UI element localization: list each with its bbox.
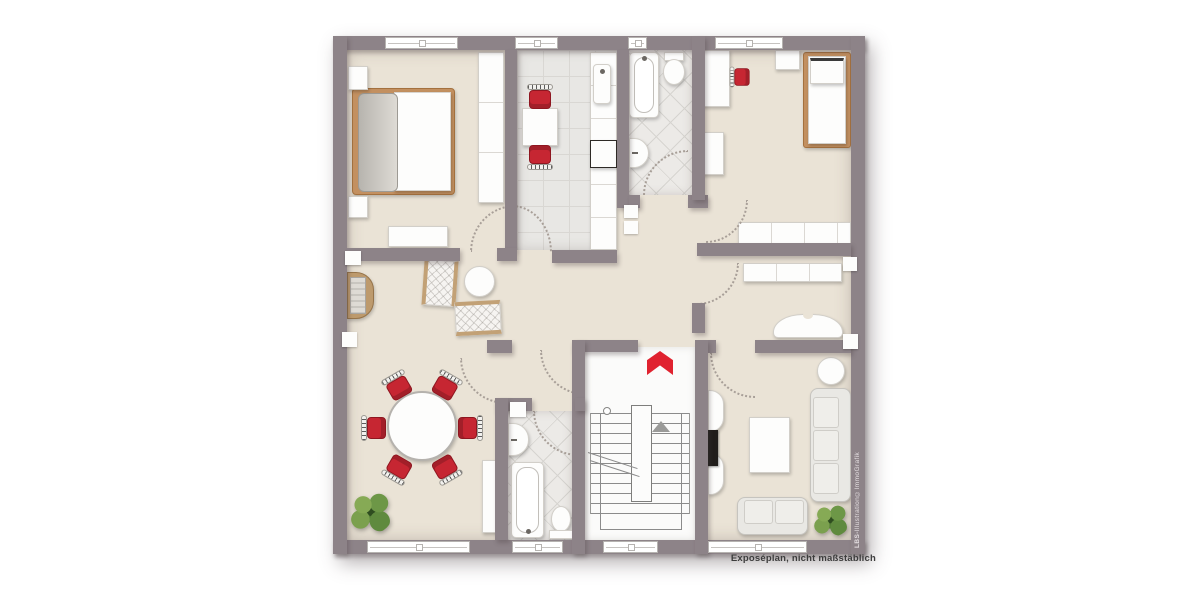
wall-niche — [843, 257, 857, 271]
hall-sideboard — [743, 263, 842, 282]
sofa-cushion — [813, 397, 839, 428]
sofa-cushion — [813, 463, 839, 494]
toilet-bowl — [551, 506, 571, 532]
chair-seat — [458, 417, 477, 439]
wall-niche — [345, 251, 361, 265]
watermark-text: Illustration©ImmoGrafik — [854, 452, 861, 531]
coffee-table — [749, 417, 790, 473]
dining-chair — [361, 414, 387, 442]
wall — [505, 50, 517, 250]
wall — [333, 36, 347, 554]
bathtub — [629, 52, 659, 118]
wall — [572, 340, 585, 554]
stair-newel — [603, 407, 611, 415]
sofa-3seat — [810, 388, 851, 502]
single-bed-pillow — [810, 58, 844, 84]
wall-niche — [624, 221, 638, 234]
dresser — [388, 226, 448, 247]
window — [603, 541, 658, 553]
wall — [692, 36, 705, 200]
wall — [708, 340, 716, 353]
window — [512, 541, 563, 553]
chair-seat — [367, 417, 386, 439]
wall — [617, 50, 629, 208]
chair-seat — [529, 90, 551, 109]
wall-niche — [342, 332, 357, 347]
upholstered-chair — [421, 259, 458, 307]
wall — [695, 340, 708, 554]
chair-seat — [734, 68, 749, 86]
floorplan-canvas: Exposéplan, nicht maßstäblich LBS-Illust… — [0, 0, 1200, 600]
plant — [812, 504, 850, 537]
wall — [495, 398, 508, 540]
nightstand — [348, 196, 368, 218]
nightstand — [348, 66, 368, 90]
illustrator-watermark: LBS-Illustration©ImmoGrafik — [851, 438, 865, 548]
plant — [349, 491, 393, 534]
bedside-shelf — [775, 50, 800, 70]
wall — [755, 340, 851, 353]
chair-backrest — [477, 415, 483, 441]
window — [367, 541, 470, 553]
window — [708, 541, 807, 553]
dining-chair — [457, 414, 483, 442]
sofa-cushion — [813, 430, 839, 461]
kitchen-chair — [526, 144, 554, 170]
plan-caption: Exposéplan, nicht maßstäblich — [600, 553, 876, 564]
wall — [692, 303, 705, 333]
curved-console — [773, 314, 843, 338]
toilet-tank — [549, 530, 573, 539]
wall — [552, 250, 617, 263]
toilet-bowl — [663, 59, 685, 85]
double-bed-duvet — [394, 92, 451, 191]
stove — [590, 140, 617, 168]
armchair — [347, 272, 374, 319]
wall-niche — [624, 205, 638, 218]
wall — [697, 243, 851, 256]
window — [715, 37, 783, 49]
stair-direction-arrow — [652, 421, 670, 432]
double-bed-pillow — [358, 93, 398, 192]
desk-chair — [730, 66, 751, 88]
side-table — [464, 266, 495, 297]
kitchen-chair — [526, 84, 554, 110]
wall — [487, 340, 512, 353]
upholstered-chair — [454, 300, 502, 336]
sofa-cushion — [775, 500, 804, 524]
sofa-cushion — [744, 500, 773, 524]
wall — [575, 398, 585, 411]
sofa-2seat — [737, 497, 808, 535]
wall — [497, 248, 517, 261]
media-unit — [708, 390, 724, 432]
window — [628, 37, 647, 49]
kitchen-sink — [593, 64, 611, 104]
stair-stringer — [631, 405, 652, 502]
wall-niche — [843, 334, 858, 349]
window — [385, 37, 458, 49]
wardrobe — [478, 52, 504, 203]
chair-seat — [529, 145, 551, 164]
wall-niche — [510, 402, 526, 417]
watermark-brand: LBS- — [854, 531, 861, 548]
wall — [347, 248, 460, 261]
window — [515, 37, 558, 49]
bathtub — [511, 462, 544, 538]
chair-backrest — [527, 164, 553, 170]
side-table — [817, 357, 845, 385]
kitchen-table — [522, 108, 558, 146]
